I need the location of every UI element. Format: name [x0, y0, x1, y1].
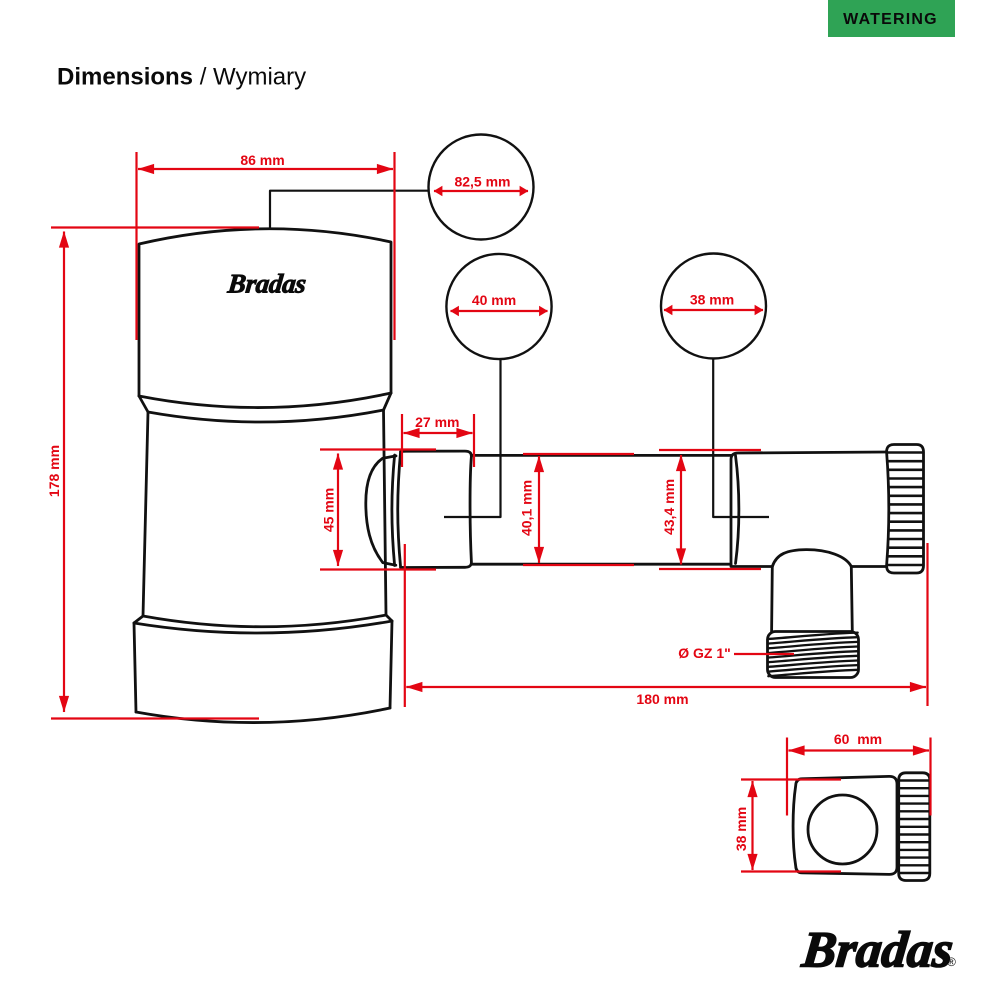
svg-text:43,4 mm: 43,4 mm — [661, 479, 677, 535]
svg-text:60 mm: 60 mm — [834, 731, 882, 747]
svg-text:45 mm: 45 mm — [321, 488, 337, 532]
svg-text:38 mm: 38 mm — [690, 292, 734, 308]
svg-text:Bradas: Bradas — [799, 922, 956, 979]
svg-text:40 mm: 40 mm — [472, 292, 516, 308]
svg-text:WATERING: WATERING — [843, 11, 938, 28]
svg-text:180 mm: 180 mm — [636, 691, 688, 707]
svg-text:Dimensions / Wymiary: Dimensions / Wymiary — [57, 64, 306, 91]
svg-text:Ø GZ 1": Ø GZ 1" — [678, 645, 731, 661]
svg-text:38 mm: 38 mm — [733, 807, 749, 851]
svg-text:27 mm: 27 mm — [415, 414, 459, 430]
svg-text:Bradas: Bradas — [226, 269, 308, 299]
svg-text:®: ® — [947, 955, 956, 969]
svg-text:178 mm: 178 mm — [46, 445, 62, 497]
svg-text:40,1 mm: 40,1 mm — [519, 480, 535, 536]
svg-text:86 mm: 86 mm — [240, 152, 284, 168]
svg-text:82,5 mm: 82,5 mm — [454, 174, 510, 190]
